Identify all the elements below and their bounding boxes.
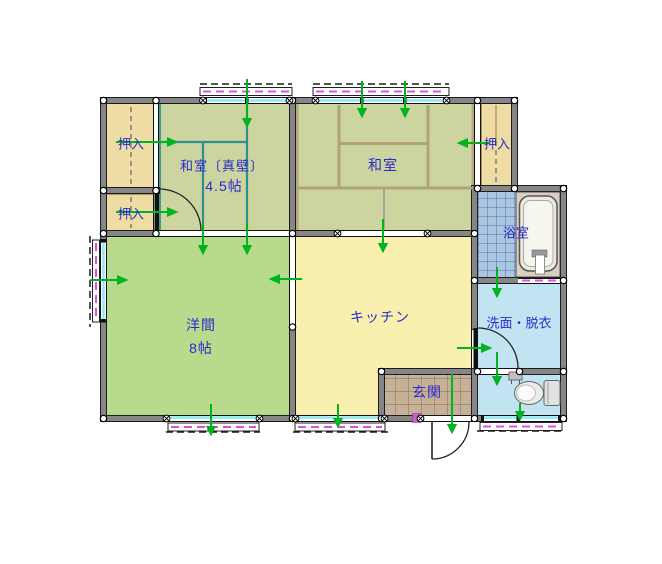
wall-top — [100, 97, 518, 104]
room-label-oshiire-top-left: 押入 — [118, 134, 144, 153]
wall-right-outer — [560, 185, 567, 422]
opening-kitchen-washroom — [471, 330, 478, 368]
entrance-doorway — [420, 415, 471, 422]
opening-washitsu-kitchen — [338, 230, 428, 237]
window-toilet-bottom — [480, 415, 562, 422]
window-kitchen-bottom — [295, 415, 385, 422]
wall-bath-top — [474, 185, 567, 192]
room-size-yoma: 8帖 — [189, 338, 213, 358]
fusuma-oshiire-right — [474, 104, 481, 185]
window-yoma-bottom — [167, 415, 260, 422]
opening-yoma-kitchen — [289, 237, 296, 327]
room-label-oshiire-bottom-left: 押入 — [118, 204, 144, 223]
room-label-genkan: 玄関 — [412, 382, 442, 402]
window-yoma-left — [100, 240, 107, 322]
fusuma-oshiire-left — [153, 104, 159, 230]
wall-center-lower — [289, 325, 296, 422]
floor-toilet — [478, 372, 563, 418]
window-shinkabe-top — [205, 97, 290, 104]
wall-kitchen-right-lower — [471, 368, 478, 422]
wall-genkan-left — [378, 368, 385, 422]
opening-shinkabe-yoma — [159, 230, 289, 237]
window-washitsu-top — [315, 97, 447, 104]
opening-washroom-toilet — [478, 368, 518, 375]
floorplan-canvas: 押入 押入 押入 和室〔真壁〕 4.5帖 和室 洋間 8帖 キッチン 浴室 洗面… — [0, 0, 662, 564]
room-label-washitsu: 和室 — [368, 155, 398, 175]
room-label-oshiire-right: 押入 — [484, 134, 510, 153]
room-label-bathroom: 浴室 — [503, 223, 529, 242]
room-label-washitsu-shinkabe: 和室〔真壁〕 — [180, 156, 264, 175]
wall-kitchen-right-upper — [471, 185, 478, 330]
wall-closet-divider — [100, 187, 160, 194]
door-arc-entrance — [432, 422, 469, 459]
room-label-washroom: 洗面・脱衣 — [486, 313, 551, 332]
room-size-washitsu-shinkabe: 4.5帖 — [205, 176, 242, 196]
room-label-kitchen: キッチン — [350, 307, 410, 327]
wall-oshiire-right-outer — [511, 97, 518, 192]
opening-bath-door — [518, 278, 560, 284]
room-label-yoma: 洋間 — [186, 315, 216, 335]
wall-center-upper — [289, 97, 296, 237]
